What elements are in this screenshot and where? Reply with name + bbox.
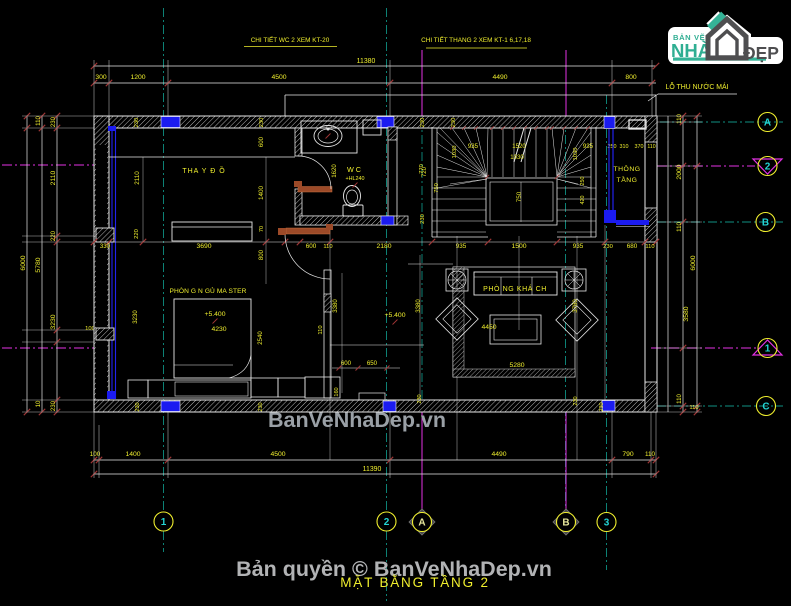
svg-text:3780: 3780 xyxy=(572,299,579,313)
svg-text:935: 935 xyxy=(573,243,584,250)
svg-text:935: 935 xyxy=(468,143,479,150)
svg-text:LỖ THU NƯỚC MÁI: LỖ THU NƯỚC MÁI xyxy=(666,82,729,91)
svg-text:650: 650 xyxy=(367,360,378,367)
svg-text:230: 230 xyxy=(258,402,264,411)
svg-text:3380: 3380 xyxy=(332,299,339,313)
svg-text:100: 100 xyxy=(85,326,95,332)
svg-text:BanVeNhaDep.vn: BanVeNhaDep.vn xyxy=(268,408,446,432)
svg-text:70: 70 xyxy=(259,226,265,232)
svg-text:230: 230 xyxy=(134,118,140,128)
svg-text:420: 420 xyxy=(580,196,586,205)
svg-text:110: 110 xyxy=(645,244,654,250)
svg-text:1030: 1030 xyxy=(452,146,458,159)
svg-text:800: 800 xyxy=(258,249,265,260)
svg-text:ĐẸP: ĐẸP xyxy=(743,43,779,63)
svg-text:1030: 1030 xyxy=(573,148,579,161)
svg-text:A: A xyxy=(418,518,425,529)
svg-text:310: 310 xyxy=(620,144,629,150)
svg-text:3230: 3230 xyxy=(50,314,57,329)
svg-text:230: 230 xyxy=(259,118,265,128)
svg-text:4500: 4500 xyxy=(271,74,286,81)
svg-text:1030: 1030 xyxy=(510,154,524,161)
svg-text:3: 3 xyxy=(604,518,610,529)
svg-text:4490: 4490 xyxy=(492,74,507,81)
svg-text:110: 110 xyxy=(676,394,683,404)
svg-text:110: 110 xyxy=(318,325,324,334)
svg-text:C: C xyxy=(762,402,769,413)
svg-text:3230: 3230 xyxy=(132,310,139,324)
svg-text:2540: 2540 xyxy=(257,331,264,345)
svg-text:110: 110 xyxy=(323,244,332,250)
svg-text:230: 230 xyxy=(420,214,426,224)
svg-text:160: 160 xyxy=(334,387,340,396)
svg-text:230: 230 xyxy=(603,244,613,250)
svg-text:230: 230 xyxy=(50,400,57,411)
svg-text:250: 250 xyxy=(580,177,586,186)
svg-text:11380: 11380 xyxy=(357,58,376,65)
svg-text:11390: 11390 xyxy=(363,466,382,473)
svg-text:600: 600 xyxy=(341,360,352,367)
svg-text:4230: 4230 xyxy=(211,326,226,333)
svg-text:330: 330 xyxy=(100,243,111,250)
svg-text:PHÒ NG KHÁ CH: PHÒ NG KHÁ CH xyxy=(483,284,547,293)
svg-text:750: 750 xyxy=(434,183,440,193)
svg-text:600: 600 xyxy=(306,243,317,250)
svg-text:230: 230 xyxy=(417,394,423,403)
svg-text:680: 680 xyxy=(627,243,638,250)
svg-text:10: 10 xyxy=(35,400,42,407)
svg-text:300: 300 xyxy=(95,74,107,81)
svg-text:230: 230 xyxy=(599,402,605,411)
svg-text:3580: 3580 xyxy=(683,306,690,321)
svg-text:110: 110 xyxy=(35,116,42,126)
svg-text:110: 110 xyxy=(647,144,655,150)
svg-text:800: 800 xyxy=(625,74,637,81)
svg-text:110: 110 xyxy=(645,451,656,458)
svg-text:MẶT BẰNG TẦNG 2: MẶT BẰNG TẦNG 2 xyxy=(340,575,490,590)
svg-text:6000: 6000 xyxy=(20,255,27,270)
svg-text:A: A xyxy=(764,118,771,129)
svg-text:2000: 2000 xyxy=(676,164,683,179)
svg-text:4500: 4500 xyxy=(270,451,285,458)
svg-text:NHÀ: NHÀ xyxy=(671,40,711,61)
svg-text:2: 2 xyxy=(765,162,771,173)
svg-text:3690: 3690 xyxy=(196,243,211,250)
svg-text:230: 230 xyxy=(135,402,141,411)
svg-text:3380: 3380 xyxy=(415,299,422,313)
svg-text:1400: 1400 xyxy=(125,451,140,458)
svg-text:2180: 2180 xyxy=(376,243,391,250)
svg-text:1400: 1400 xyxy=(258,186,265,201)
svg-text:1: 1 xyxy=(765,344,771,355)
svg-text:2110: 2110 xyxy=(134,171,141,185)
svg-text:790: 790 xyxy=(622,451,634,458)
svg-text:1620: 1620 xyxy=(331,164,338,178)
svg-text:B: B xyxy=(562,518,569,529)
svg-text:230: 230 xyxy=(420,118,426,128)
svg-text:THÔNG: THÔNG xyxy=(613,164,640,173)
svg-text:600: 600 xyxy=(258,136,265,147)
svg-text:220: 220 xyxy=(134,229,140,239)
svg-text:935: 935 xyxy=(583,143,594,150)
svg-text:5780: 5780 xyxy=(35,257,42,272)
svg-text:230: 230 xyxy=(451,118,457,128)
svg-text:PHÒN G N GỦ MA STER: PHÒN G N GỦ MA STER xyxy=(169,286,246,295)
svg-text:5280: 5280 xyxy=(509,362,524,369)
svg-text:4490: 4490 xyxy=(491,451,506,458)
svg-text:B: B xyxy=(762,218,769,229)
svg-text:220: 220 xyxy=(50,230,57,241)
svg-text:2110: 2110 xyxy=(50,170,57,185)
svg-text:110: 110 xyxy=(676,114,683,124)
svg-text:4450: 4450 xyxy=(481,324,496,331)
svg-text:1200: 1200 xyxy=(130,74,145,81)
svg-text:770: 770 xyxy=(419,164,425,174)
svg-text:+5.400: +5.400 xyxy=(205,311,226,318)
svg-text:370: 370 xyxy=(635,144,644,150)
svg-text:110: 110 xyxy=(676,222,683,232)
svg-text:1: 1 xyxy=(161,517,167,528)
svg-text:1520: 1520 xyxy=(512,143,526,150)
svg-text:750: 750 xyxy=(516,191,523,202)
svg-text:935: 935 xyxy=(456,243,467,250)
svg-text:W C: W C xyxy=(347,165,361,174)
svg-text:230: 230 xyxy=(573,396,579,405)
svg-text:230: 230 xyxy=(50,116,57,127)
svg-text:6000: 6000 xyxy=(690,255,697,270)
svg-text:+HL240: +HL240 xyxy=(345,176,364,182)
svg-text:2: 2 xyxy=(384,517,390,528)
svg-text:+5.400: +5.400 xyxy=(385,312,406,319)
